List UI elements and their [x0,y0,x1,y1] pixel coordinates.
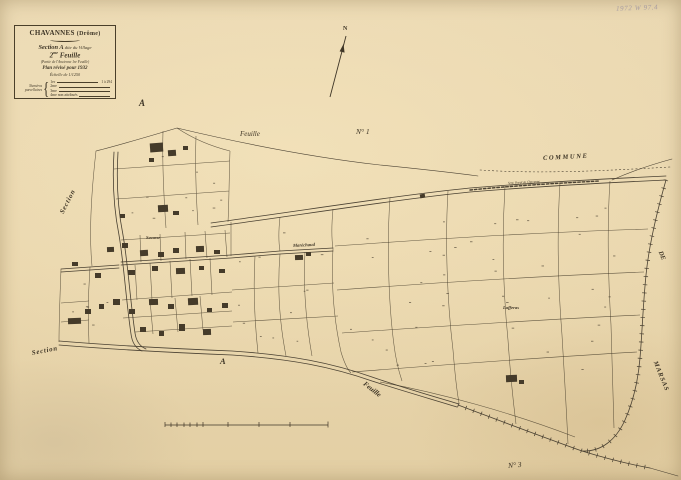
archive-cote: 1972 W 97.4 [616,3,658,12]
village-buildings [68,143,524,384]
section-name: Section A [38,44,63,51]
title-block: CHAVANNES (Drôme) Section A dite du Vill… [14,25,116,99]
feuille-ordinal: me [53,50,58,55]
legend-rows: 1er1 à 294 2me 3me 4me non attribués [49,79,112,97]
label-a-lower: A [220,356,226,366]
north-label: N [343,26,347,32]
label-sheet-no3: N° 3 [508,460,522,470]
legend-range: 1 à 294 [100,80,112,84]
label-lafferas: Lafferas [503,305,519,310]
feuille-word: Feuille [60,52,81,60]
scanned-cadastral-map: CHAVANNES (Drôme) Section A dite du Vill… [0,0,681,480]
section-alias: dite du Village [65,45,92,50]
feuille-line: 2me Feuille [18,51,112,59]
title-ornament [50,38,80,42]
label-feuille-top: Feuille [240,130,260,138]
legend-row: 4me non attribués [50,93,112,98]
parcel-numbers-legend: Numéros parcellaires { 1er1 à 294 2me 3m… [18,79,112,97]
legend-caption: Numéros parcellaires [18,85,43,93]
label-a-upper: A [139,98,145,108]
legend-brace: { [43,80,49,98]
north-arrow-icon [330,36,346,97]
ancienne-feuille-note: (Partie de l'Ancienne 1re Feuille) [18,60,112,64]
scale-line: Échelle de 1/1250 [18,73,112,78]
departement: (Drôme) [77,31,101,37]
map-title: CHAVANNES (Drôme) [18,29,112,38]
section-line: Section A dite du Village [18,44,112,51]
revision-line: Plan révisé pour 1932 [18,66,112,72]
commune-name: CHAVANNES [29,29,74,37]
scale-bar [165,422,328,428]
label-savasse: Savasse [146,235,160,240]
label-sheet-no1: N° 1 [356,127,370,136]
